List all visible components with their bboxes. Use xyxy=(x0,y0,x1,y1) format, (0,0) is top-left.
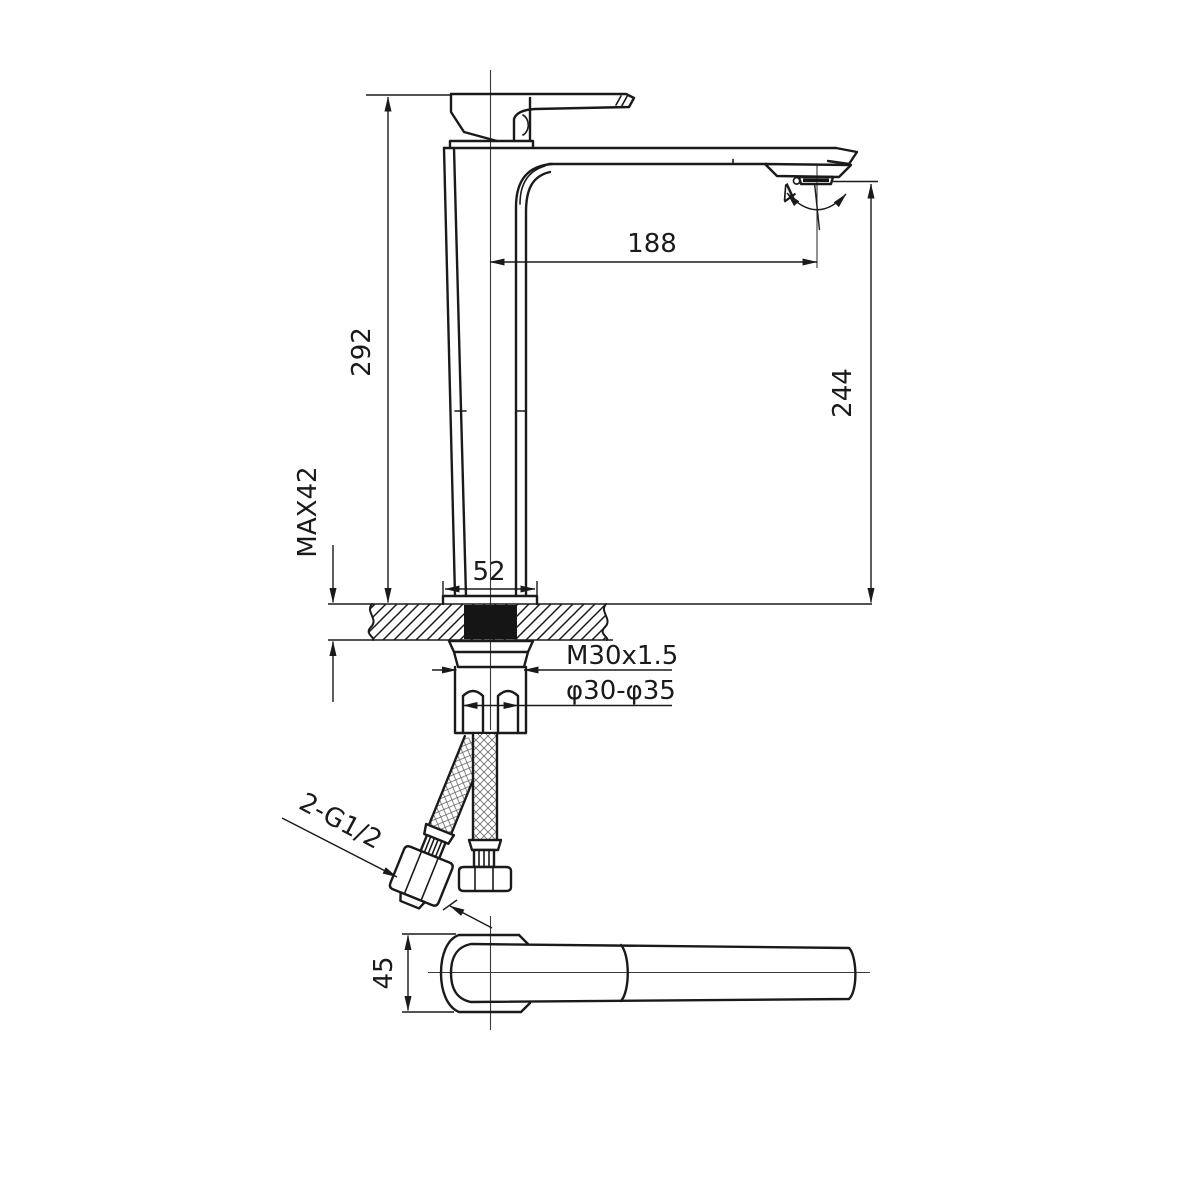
faucet-technical-drawing: 292 188 244 4° MAX42 52 M30x1.5 φ30-φ35 … xyxy=(0,0,1200,1200)
counter-section xyxy=(328,604,872,640)
base-width-label: 52 xyxy=(472,557,505,587)
faucet-bottom-view xyxy=(441,935,855,1012)
max-thickness-label: MAX42 xyxy=(293,466,323,557)
inner-corner xyxy=(516,164,552,596)
spout-reach-label: 188 xyxy=(627,229,677,259)
lever-outline xyxy=(451,94,634,141)
shank-gasket xyxy=(464,605,517,639)
straight-hex-nut xyxy=(459,867,511,891)
body-left-inner-edge xyxy=(454,148,466,596)
body-left-edge xyxy=(444,148,455,596)
aerator-housing xyxy=(765,164,851,177)
angled-hex-nut xyxy=(389,845,454,907)
handle-lever xyxy=(450,94,634,148)
base-plate-outline xyxy=(441,935,521,1012)
lever-tip-hatch xyxy=(616,96,627,106)
aerator-screen xyxy=(803,179,829,183)
body-right-edge xyxy=(526,172,550,596)
pivot-detail xyxy=(523,115,528,135)
body-and-spout xyxy=(443,148,857,604)
supply-hoses xyxy=(386,731,511,915)
outlet-height-label: 244 xyxy=(828,368,858,418)
straight-hose-braid xyxy=(472,734,498,840)
thread-spec-label: M30x1.5 xyxy=(566,641,678,671)
spout-tip xyxy=(828,148,857,164)
overall-height-label: 292 xyxy=(347,327,377,377)
faucet-side-view xyxy=(328,94,872,914)
hose-thread-label: 2-G1/2 xyxy=(294,787,387,855)
drawing-sheet: 292 188 244 4° MAX42 52 M30x1.5 φ30-φ35 … xyxy=(0,0,1200,1200)
body-depth-label: 45 xyxy=(369,956,399,989)
hole-diameter-label: φ30-φ35 xyxy=(566,676,676,706)
fitting-leader xyxy=(450,906,492,928)
dimensions: 292 188 244 4° MAX42 52 M30x1.5 φ30-φ35 … xyxy=(282,95,878,1012)
straight-hose-collar xyxy=(469,840,501,850)
